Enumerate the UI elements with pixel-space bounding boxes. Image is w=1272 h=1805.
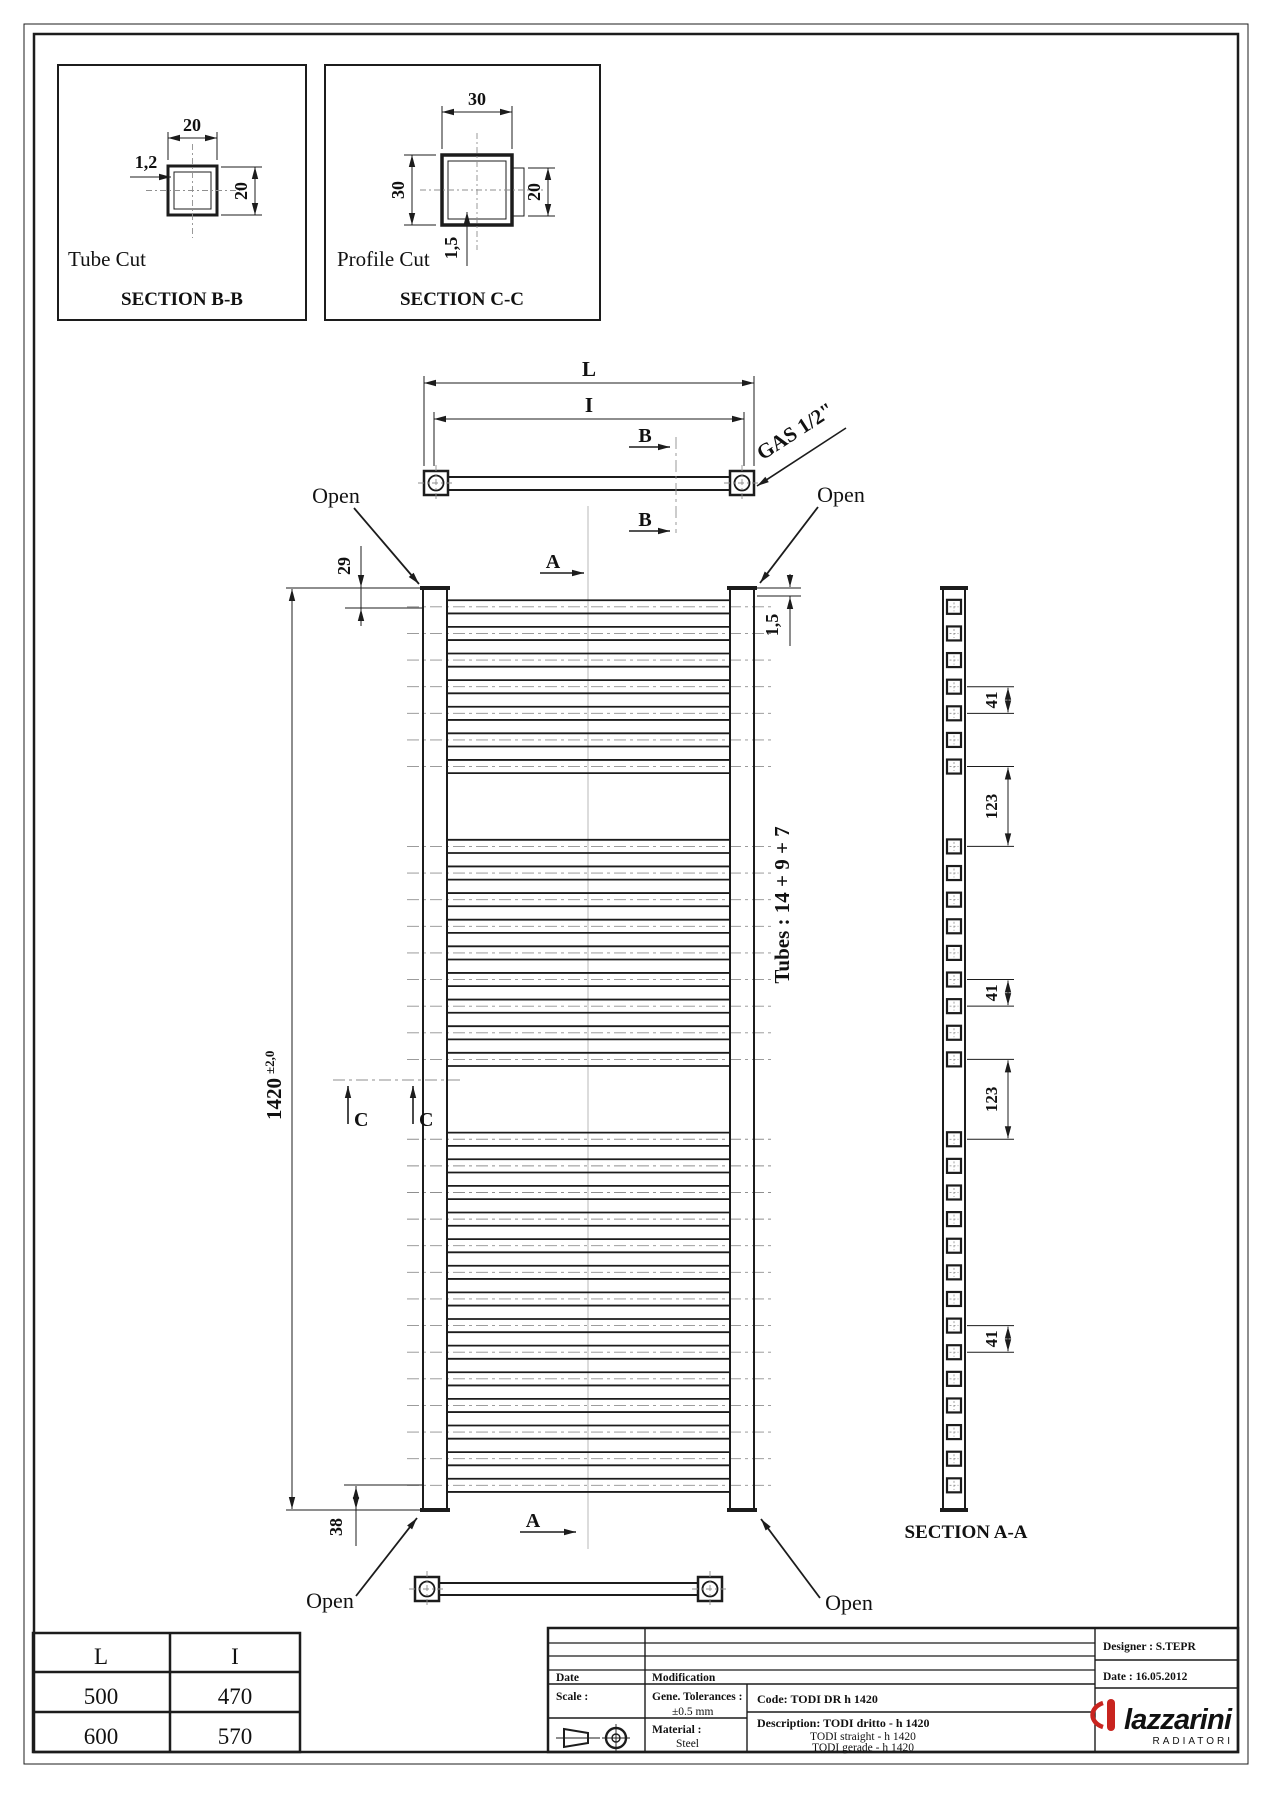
aa-tube-square xyxy=(947,1052,961,1066)
aa-dim-label: 123 xyxy=(982,1087,1001,1113)
aa-dim-bracket: 123 xyxy=(967,767,1014,847)
cut-mark-b-bottom: B xyxy=(638,509,651,531)
tube-row xyxy=(407,893,771,906)
tube-row xyxy=(407,1292,771,1305)
size-table-cell: 600 xyxy=(84,1724,119,1749)
tube-row xyxy=(407,1425,771,1438)
page-border xyxy=(24,24,1248,1764)
aa-tube-square xyxy=(947,999,961,1013)
open-label-bottom-right: Open xyxy=(825,1590,873,1615)
section-cc-box: 30 30 20 1,5 Profile Cut xyxy=(325,65,600,320)
aa-dim-bracket: 123 xyxy=(967,1059,1014,1139)
profile-cut-dim-width: 30 xyxy=(468,89,486,109)
left-column xyxy=(423,588,447,1510)
aa-tube-square xyxy=(947,1239,961,1253)
profile-cut-dim-wall: 1,5 xyxy=(441,237,461,260)
size-table-cell: 500 xyxy=(84,1684,119,1709)
tube-row xyxy=(407,760,771,773)
aa-dim-label: 123 xyxy=(982,794,1001,820)
lazzarini-logo-word: lazzarini xyxy=(1124,1704,1233,1736)
tube-row xyxy=(407,1213,771,1226)
gas-connection-label: GAS 1/2" xyxy=(752,397,838,464)
drawing-sheet: 20 20 1,2 Tube Cut SECTION B-B 30 30 20 xyxy=(0,0,1272,1800)
aa-tube-square xyxy=(947,1159,961,1173)
tube-row xyxy=(407,1026,771,1039)
aa-dim-label: 41 xyxy=(982,1330,1001,1347)
section-cc-label: SECTION C-C xyxy=(400,289,524,310)
titleblock-designer: Designer : S.TEPR xyxy=(1103,1641,1196,1653)
titleblock-code: Code: TODI DR h 1420 xyxy=(757,1692,878,1706)
tube-cut-dim-wall: 1,2 xyxy=(135,152,158,172)
aa-tube-square xyxy=(947,706,961,720)
section-aa-tubes xyxy=(947,600,961,1492)
aa-tube-square xyxy=(947,1265,961,1279)
titleblock-material-label: Material : xyxy=(652,1724,702,1736)
top-view-dim-L: L xyxy=(582,357,596,381)
title-block: Date Modification Scale : Gene. Toleranc… xyxy=(548,1628,1238,1754)
aa-tube-square xyxy=(947,733,961,747)
cut-mark-a-top: A xyxy=(546,551,561,573)
tube-row xyxy=(407,946,771,959)
section-aa: 411234112341 SECTION A-A xyxy=(905,588,1028,1543)
tube-row xyxy=(407,707,771,720)
profile-cut-dim-height: 30 xyxy=(388,181,408,199)
titleblock-tolerances-label: Gene. Tolerances : xyxy=(652,1691,742,1703)
titleblock-description-1: Description: TODI dritto - h 1420 xyxy=(757,1716,930,1730)
tube-row xyxy=(407,1372,771,1385)
tube-row xyxy=(407,1000,771,1013)
tube-row xyxy=(407,866,771,879)
aa-tube-square xyxy=(947,600,961,614)
section-bb-box: 20 20 1,2 Tube Cut xyxy=(58,65,306,320)
aa-tube-square xyxy=(947,626,961,640)
aa-tube-square xyxy=(947,1185,961,1199)
tube-row xyxy=(407,1133,771,1146)
aa-dim-bracket: 41 xyxy=(967,1326,1014,1353)
aa-tube-square xyxy=(947,760,961,774)
tube-row xyxy=(407,627,771,640)
titleblock-date-label: Date xyxy=(556,1672,579,1684)
cut-mark-c-right: C xyxy=(419,1109,433,1131)
lazzarini-logo-tagline: RADIATORI xyxy=(1152,1736,1233,1747)
size-table-cell: 470 xyxy=(218,1684,253,1709)
aa-tube-square xyxy=(947,1319,961,1333)
tubes-layer xyxy=(407,600,771,1492)
open-label-top-right: Open xyxy=(817,482,865,507)
profile-cut-title: Profile Cut xyxy=(337,247,430,271)
aa-tube-square xyxy=(947,973,961,987)
tube-row xyxy=(407,840,771,853)
aa-tube-square xyxy=(947,1398,961,1412)
tube-row xyxy=(407,920,771,933)
tube-row xyxy=(407,1319,771,1332)
size-table-cell: 570 xyxy=(218,1724,253,1749)
aa-tube-square xyxy=(947,1212,961,1226)
tube-row xyxy=(407,680,771,693)
top-view: L I B B GAS 1/2" Open Open xyxy=(312,357,865,584)
open-label-top-left: Open xyxy=(312,483,360,508)
titleblock-material-value: Steel xyxy=(676,1738,699,1750)
front-dim-1-5: 1,5 xyxy=(762,614,782,637)
tube-row xyxy=(407,1239,771,1252)
bottom-view xyxy=(409,1571,728,1607)
titleblock-date-value: Date : 16.05.2012 xyxy=(1103,1671,1188,1683)
open-label-bottom-left: Open xyxy=(306,1588,354,1613)
front-dim-height: 1420 ±2,0 xyxy=(262,1051,286,1120)
tube-row xyxy=(407,1479,771,1492)
tube-cut-dim-height: 20 xyxy=(231,182,251,200)
tubes-count-label: Tubes : 14 + 9 + 7 xyxy=(770,826,794,983)
tube-row xyxy=(407,653,771,666)
aa-tube-square xyxy=(947,1372,961,1386)
top-view-dim-I: I xyxy=(585,393,593,417)
tube-row xyxy=(407,1399,771,1412)
profile-cut-dim-tube: 20 xyxy=(524,183,544,201)
right-column xyxy=(730,588,754,1510)
size-table-header: I xyxy=(231,1644,239,1669)
titleblock-scale-label: Scale : xyxy=(556,1691,588,1703)
aa-tube-square xyxy=(947,1132,961,1146)
aa-dim-bracket: 41 xyxy=(967,687,1014,714)
aa-tube-square xyxy=(947,839,961,853)
aa-tube-square xyxy=(947,1026,961,1040)
aa-tube-square xyxy=(947,1478,961,1492)
size-table-header: L xyxy=(94,1644,108,1669)
tube-cut-title: Tube Cut xyxy=(68,247,146,271)
tube-row xyxy=(407,1346,771,1359)
tube-row xyxy=(407,1159,771,1172)
aa-tube-square xyxy=(947,866,961,880)
lazzarini-logo-icon xyxy=(1093,1699,1115,1731)
tube-row xyxy=(407,733,771,746)
cut-mark-c-left: C xyxy=(354,1109,368,1131)
aa-tube-square xyxy=(947,919,961,933)
aa-dim-bracket: 41 xyxy=(967,980,1014,1007)
tube-row xyxy=(407,1266,771,1279)
aa-tube-square xyxy=(947,1425,961,1439)
aa-dim-label: 41 xyxy=(982,692,1001,709)
aa-dim-label: 41 xyxy=(982,984,1001,1001)
front-dim-29: 29 xyxy=(334,557,354,575)
aa-tube-square xyxy=(947,946,961,960)
aa-tube-square xyxy=(947,1345,961,1359)
tube-row xyxy=(407,1186,771,1199)
cut-mark-b-top: B xyxy=(638,425,651,447)
titleblock-tolerances-value: ±0.5 mm xyxy=(672,1706,714,1718)
cut-mark-a-bottom: A xyxy=(526,1510,541,1532)
projection-symbol-icon xyxy=(556,1724,630,1752)
titleblock-description-3: TODI gerade - h 1420 xyxy=(812,1742,914,1754)
tube-row xyxy=(407,600,771,613)
section-aa-dims: 411234112341 xyxy=(967,687,1014,1353)
aa-tube-square xyxy=(947,1452,961,1466)
section-bb-label: SECTION B-B xyxy=(121,289,243,310)
front-dim-38: 38 xyxy=(326,1518,346,1536)
aa-tube-square xyxy=(947,680,961,694)
tube-row xyxy=(407,1452,771,1465)
tube-row xyxy=(407,1053,771,1066)
aa-tube-square xyxy=(947,893,961,907)
titleblock-modification-label: Modification xyxy=(652,1672,716,1684)
aa-tube-square xyxy=(947,1292,961,1306)
tube-row xyxy=(407,973,771,986)
size-table: LI500470600570 xyxy=(33,1633,300,1752)
lazzarini-logo: lazzarini RADIATORI xyxy=(1093,1699,1233,1747)
aa-tube-square xyxy=(947,653,961,667)
tube-cut-dim-width: 20 xyxy=(183,115,201,135)
section-aa-label: SECTION A-A xyxy=(905,1522,1028,1543)
front-view: A A 29 1,5 1420 ±2,0 38 C xyxy=(262,506,873,1615)
